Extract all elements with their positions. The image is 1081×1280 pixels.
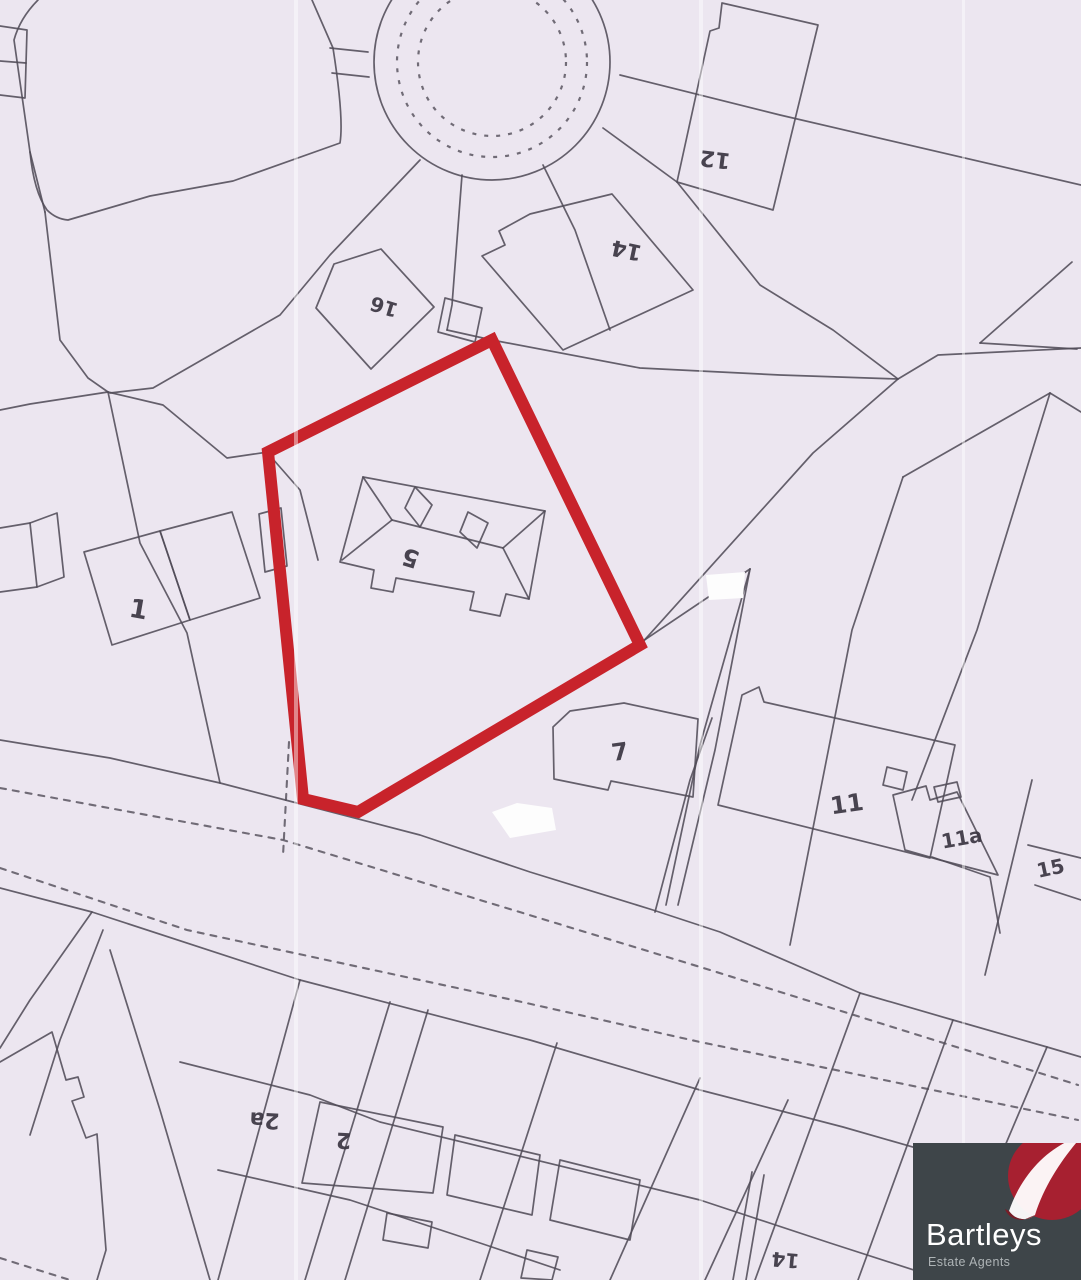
roundabout <box>374 0 610 180</box>
scan-streaks <box>294 0 965 1280</box>
plot-number-label: 11a <box>939 823 984 854</box>
buildings <box>0 3 998 1280</box>
plot-boundaries <box>0 0 1081 1280</box>
house-5-footprint <box>340 477 545 616</box>
property-boundary-highlight <box>268 340 640 812</box>
agency-logo: Bartleys Estate Agents <box>913 1143 1081 1280</box>
plot-number-label: 2a <box>249 1106 280 1133</box>
plot-number-label: 12 <box>698 144 731 173</box>
plot-number-label: 16 <box>367 291 401 322</box>
plot-number-label: 2 <box>335 1127 352 1153</box>
plot-number-label: 15 <box>1034 854 1066 883</box>
logo-brand-name: Bartleys <box>926 1217 1042 1253</box>
site-plan: 1571111a151214162a214 Bartleys Estate Ag… <box>0 0 1081 1280</box>
logo-tagline: Estate Agents <box>928 1255 1010 1269</box>
map-canvas: 1571111a151214162a214 <box>0 0 1081 1280</box>
plot-number-labels: 1571111a151214162a214 <box>127 144 1067 1273</box>
plot-number-label: 14 <box>609 234 644 265</box>
plot-number-label: 11 <box>828 788 865 820</box>
plot-number-label: 7 <box>610 737 630 767</box>
plot-number-label: 14 <box>770 1247 800 1273</box>
plot-number-label: 1 <box>127 594 150 627</box>
plot-number-label: 5 <box>399 542 423 574</box>
